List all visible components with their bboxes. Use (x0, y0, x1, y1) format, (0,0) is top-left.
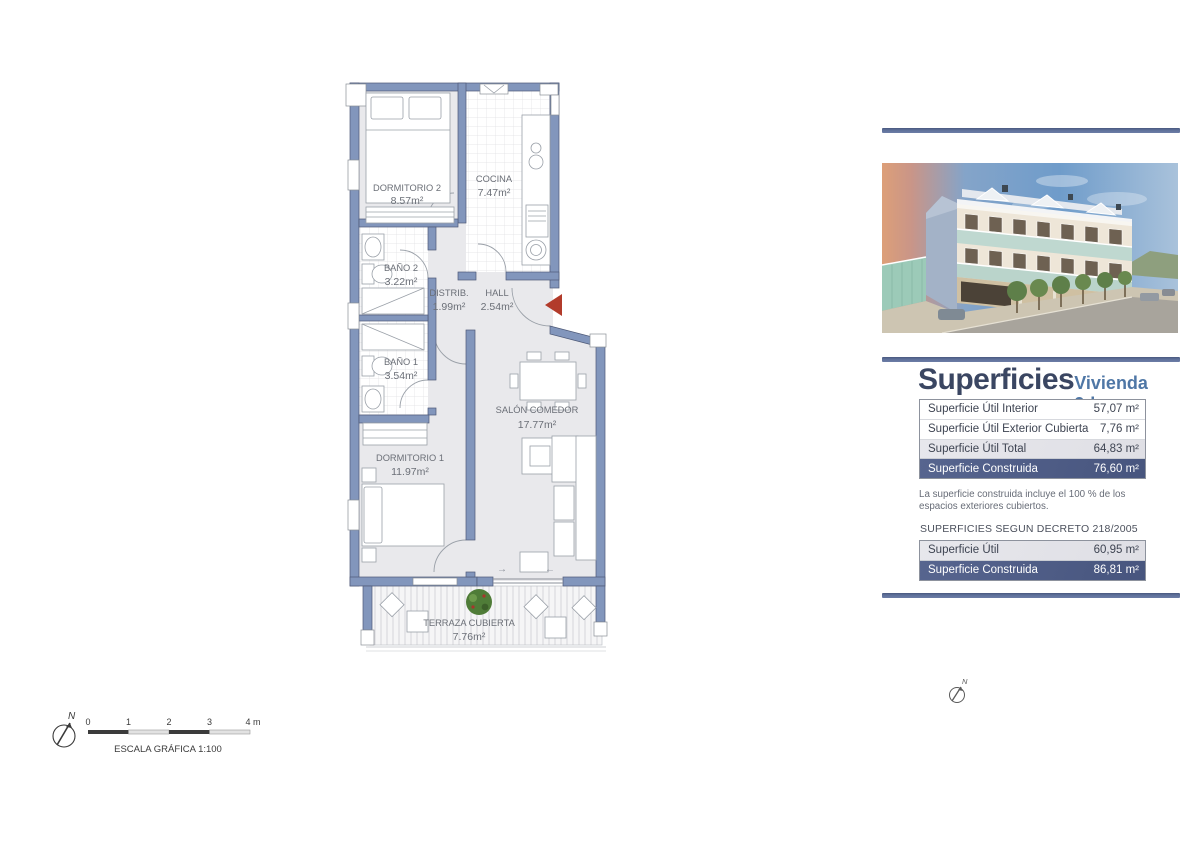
row-value: 86,81 m² (1094, 564, 1145, 576)
decree-table: Superficie Útil 60,95 m² Superficie Cons… (919, 540, 1146, 581)
row-label: Superficie Útil Exterior Cubierta (920, 423, 1088, 435)
room-label-bano1: BAÑO 1 (384, 357, 418, 367)
plant-icon (466, 589, 492, 615)
scale-tick-4: 4 m (245, 717, 260, 727)
document-page: → ← DORMITORIO 2 8.57m² COCINA 7.47m² BA… (0, 0, 1200, 848)
room-label-salon: SALÓN COMEDOR (496, 405, 579, 415)
floor-plan: → ← DORMITORIO 2 8.57m² COCINA 7.47m² BA… (346, 83, 607, 651)
room-area-distrib: 1.99m² (433, 301, 466, 313)
car (938, 309, 965, 320)
building-render-svg (882, 163, 1178, 333)
row-label: Superficie Construida (920, 564, 1038, 576)
room-label-bano2: BAÑO 2 (384, 263, 418, 273)
car (1140, 293, 1159, 301)
north-compass-icon: N (53, 711, 76, 747)
room-label-cocina: COCINA (476, 174, 513, 184)
info-panel: Superficies Vivienda 2d Superficie Útil … (882, 0, 1180, 848)
room-label-hall: HALL (485, 288, 508, 298)
row-value: 60,95 m² (1094, 544, 1145, 556)
room-area-dormitorio1: 11.97m² (391, 466, 429, 478)
scale-bar: 0 1 2 3 4 m ESCALA GRÁFICA 1:100 (85, 717, 260, 755)
car (1162, 289, 1175, 296)
room-area-bano2: 3.22m² (385, 276, 418, 288)
decree-heading: SUPERFICIES SEGUN DECRETO 218/2005 (920, 523, 1138, 535)
scale-tick-3: 3 (207, 717, 212, 727)
building-render-image (882, 163, 1178, 333)
room-area-terraza: 7.76m² (453, 631, 486, 643)
scale-tick-2: 2 (166, 717, 171, 727)
room-area-dormitorio2: 8.57m² (391, 195, 424, 207)
surfaces-table: Superficie Útil Interior 57,07 m² Superf… (919, 399, 1146, 479)
scale-label: ESCALA GRÁFICA 1:100 (114, 744, 222, 755)
room-label-dormitorio2: DORMITORIO 2 (373, 183, 441, 193)
row-value: 57,07 m² (1094, 403, 1145, 415)
surface-note: La superficie construida incluye el 100 … (919, 489, 1157, 514)
table-row: Superficie Útil Interior 57,07 m² (920, 400, 1145, 420)
door-arrow-left: ← (545, 564, 555, 575)
row-label: Superficie Útil Interior (920, 403, 1038, 415)
row-label: Superficie Útil Total (920, 443, 1026, 455)
row-value: 64,83 m² (1094, 443, 1145, 455)
room-label-dormitorio1: DORMITORIO 1 (376, 453, 444, 463)
scale-tick-1: 1 (126, 717, 131, 727)
row-value: 76,60 m² (1094, 463, 1145, 475)
divider-bar-bottom (882, 593, 1180, 598)
divider-bar-middle (882, 357, 1180, 362)
kitchen-fixtures (522, 115, 550, 265)
room-area-salon: 17.77m² (518, 419, 557, 431)
north-label: N (68, 711, 76, 722)
door-arrow-right: → (497, 564, 507, 575)
divider-bar-top (882, 128, 1180, 133)
room-area-cocina: 7.47m² (478, 187, 511, 199)
scale-tick-0: 0 (85, 717, 90, 727)
table-row-highlight: Superficie Construida 76,60 m² (920, 459, 1145, 478)
table-row: Superficie Útil Total 64,83 m² (920, 440, 1145, 460)
room-label-distrib: DISTRIB. (429, 288, 468, 298)
row-label: Superficie Construida (920, 463, 1038, 475)
row-label: Superficie Útil (920, 544, 999, 556)
room-area-bano1: 3.54m² (385, 370, 418, 382)
table-row: Superficie Útil 60,95 m² (920, 541, 1145, 561)
room-label-terraza: TERRAZA CUBIERTA (423, 618, 515, 628)
room-area-hall: 2.54m² (481, 301, 514, 313)
superficies-title: Superficies (918, 363, 1074, 397)
table-row-highlight: Superficie Construida 86,81 m² (920, 561, 1145, 580)
row-value: 7,76 m² (1100, 423, 1145, 435)
table-row: Superficie Útil Exterior Cubierta 7,76 m… (920, 420, 1145, 440)
